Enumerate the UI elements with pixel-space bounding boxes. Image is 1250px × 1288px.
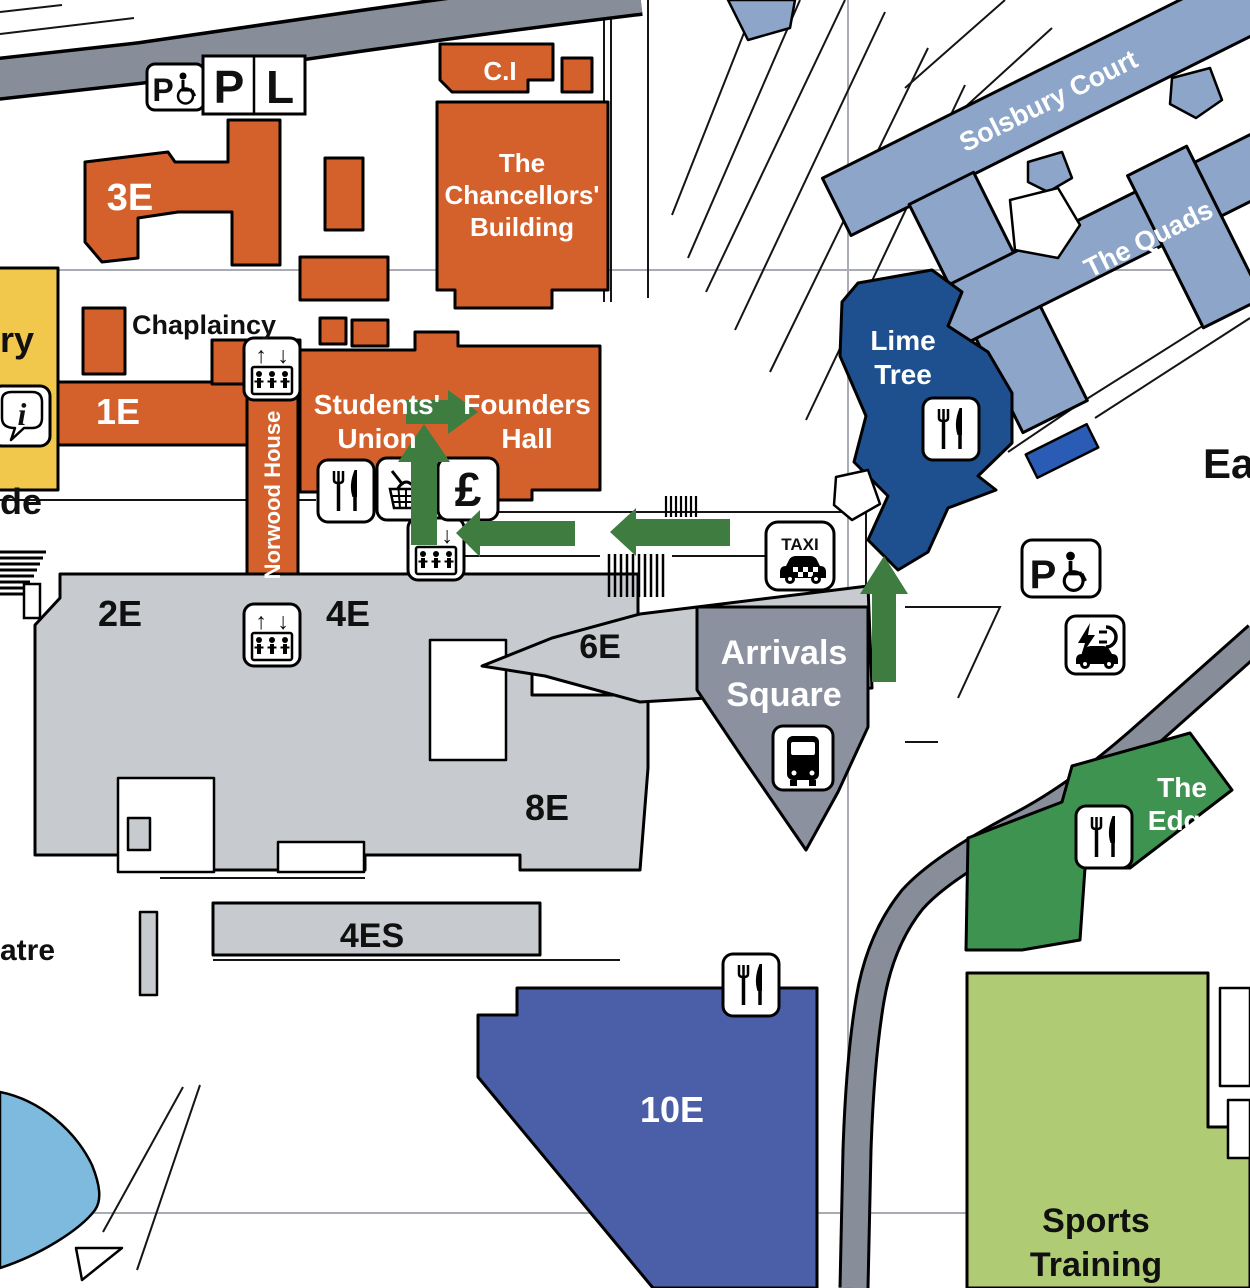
accessible-parking-label: P (152, 72, 173, 108)
food-icon-10e (723, 954, 779, 1016)
parking-label: P (214, 61, 245, 113)
label-partial-de: de (0, 481, 42, 522)
label-partial-ry: ry (0, 319, 34, 360)
label-arrivals-1: Arrivals (721, 634, 848, 672)
label-3e: 3E (107, 177, 153, 219)
label-arrivals-2: Square (726, 676, 841, 714)
taxi-label: TAXI (781, 535, 818, 554)
label-chancellors-1: The (499, 148, 545, 178)
bus-icon (773, 726, 833, 790)
label-founders-1: Founders (463, 389, 591, 420)
label-students-union-1: Students' (314, 389, 440, 420)
label-chaplaincy: Chaplaincy (132, 310, 276, 340)
building-orange-small-2 (300, 257, 388, 300)
lift-icon-norwood-bottom (244, 604, 300, 666)
accessible-parking-icon-right: P (1022, 540, 1100, 597)
courtyard-3 (430, 640, 506, 760)
label-4e: 4E (326, 593, 370, 634)
loading-bay-label: L (266, 61, 294, 113)
food-icon-the-edge (1076, 806, 1132, 868)
label-chancellors-2: Chancellors' (444, 180, 599, 210)
label-10e: 10E (640, 1089, 704, 1130)
label-8e: 8E (525, 787, 569, 828)
taxi-icon: TAXI (766, 522, 834, 590)
label-edge-1: The (1157, 772, 1207, 803)
label-students-union-2: Union (337, 423, 416, 454)
crossing-stripes-small (666, 496, 696, 517)
lift-icon-norwood-top (244, 338, 300, 400)
building-gray-small (140, 912, 157, 995)
label-east: East (1203, 440, 1250, 487)
building-white-small-1 (1220, 988, 1250, 1086)
ev-charging-icon (1066, 616, 1124, 674)
label-lime-1: Lime (870, 325, 935, 356)
building-white-small-2 (1228, 1100, 1250, 1158)
label-chancellors-3: Building (470, 212, 574, 242)
building-ci-annex (562, 58, 592, 92)
campus-map: ↑ ↓ (0, 0, 1250, 1288)
label-founders-2: Hall (501, 423, 552, 454)
food-icon-lime-tree (923, 398, 979, 460)
label-4es: 4ES (340, 917, 404, 955)
label-edge-2: Edge (1148, 805, 1216, 836)
label-sports-1: Sports (1042, 1202, 1150, 1240)
building-orange-frag-1 (320, 318, 346, 344)
label-lime-2: Tree (874, 359, 932, 390)
label-sports-2: Training (1030, 1246, 1162, 1284)
sports-training-area (967, 973, 1250, 1288)
building-orange-frag-2 (352, 320, 388, 346)
food-icon-students-union (318, 460, 374, 522)
building-library-partial (0, 268, 58, 490)
info-icon: i (0, 386, 50, 446)
building-orange-small-1 (325, 158, 363, 230)
accessible-parking-label-right: P (1030, 553, 1057, 597)
pound-glyph: £ (455, 464, 482, 517)
info-glyph: i (18, 396, 27, 432)
label-ci: C.I (483, 56, 516, 86)
label-2e: 2E (98, 593, 142, 634)
label-6e: 6E (579, 628, 621, 666)
label-1e: 1E (96, 391, 140, 432)
label-partial-atre: atre (0, 934, 55, 967)
parking-icons-top: P P L (147, 56, 305, 114)
label-norwood-house: Norwood House (260, 411, 285, 580)
courtyard-structure (128, 818, 150, 850)
building-orange-small-3 (83, 308, 125, 374)
courtyard-2 (278, 842, 364, 872)
cash-point-icon: £ (438, 458, 498, 520)
